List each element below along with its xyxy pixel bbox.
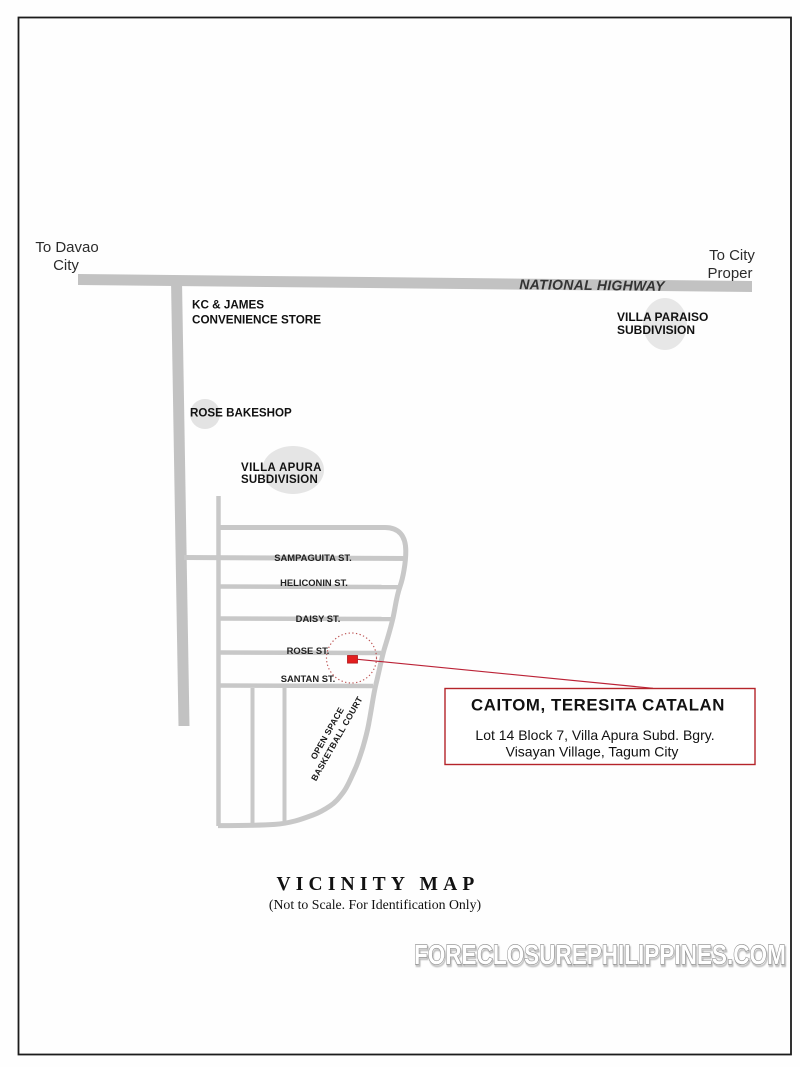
svg-text:VILLA APURA: VILLA APURA [241, 462, 322, 474]
svg-text:HELICONIN ST.: HELICONIN ST. [280, 577, 348, 588]
svg-text:CAITOM, TERESITA CATALAN: CAITOM, TERESITA CATALAN [471, 696, 725, 715]
svg-text:CONVENIENCE STORE: CONVENIENCE STORE [192, 314, 321, 327]
svg-text:(Not to Scale. For Identificat: (Not to Scale. For Identification Only) [269, 897, 481, 913]
svg-text:To City: To City [709, 247, 755, 264]
svg-text:Lot 14 Block 7, Villa Apura S: Lot 14 Block 7, Villa Apura Subd. Bgry. [475, 727, 714, 743]
svg-text:KC & JAMES: KC & JAMES [192, 299, 264, 312]
svg-text:SAMPAGUITA ST.: SAMPAGUITA ST. [274, 552, 351, 563]
svg-text:VICINITY MAP: VICINITY MAP [276, 874, 479, 895]
svg-text:DAISY ST.: DAISY ST. [296, 613, 341, 624]
svg-text:City: City [53, 257, 79, 274]
svg-text:VILLA PARAISO: VILLA PARAISO [617, 310, 708, 324]
svg-text:SUBDIVISION: SUBDIVISION [617, 323, 695, 337]
svg-text:To Davao: To Davao [35, 239, 98, 256]
svg-text:FORECLOSUREPHILIPPINES.COM: FORECLOSUREPHILIPPINES.COM [414, 940, 786, 971]
svg-text:SUBDIVISION: SUBDIVISION [241, 474, 318, 486]
svg-text:NATIONAL HIGHWAY: NATIONAL HIGHWAY [519, 276, 666, 294]
svg-text:ROSE BAKESHOP: ROSE BAKESHOP [190, 407, 292, 420]
svg-text:Visayan Village, Tagum City: Visayan Village, Tagum City [506, 744, 679, 760]
svg-text:Proper: Proper [707, 265, 752, 282]
svg-text:SANTAN ST.: SANTAN ST. [281, 673, 336, 684]
svg-text:ROSE ST.: ROSE ST. [287, 645, 330, 656]
